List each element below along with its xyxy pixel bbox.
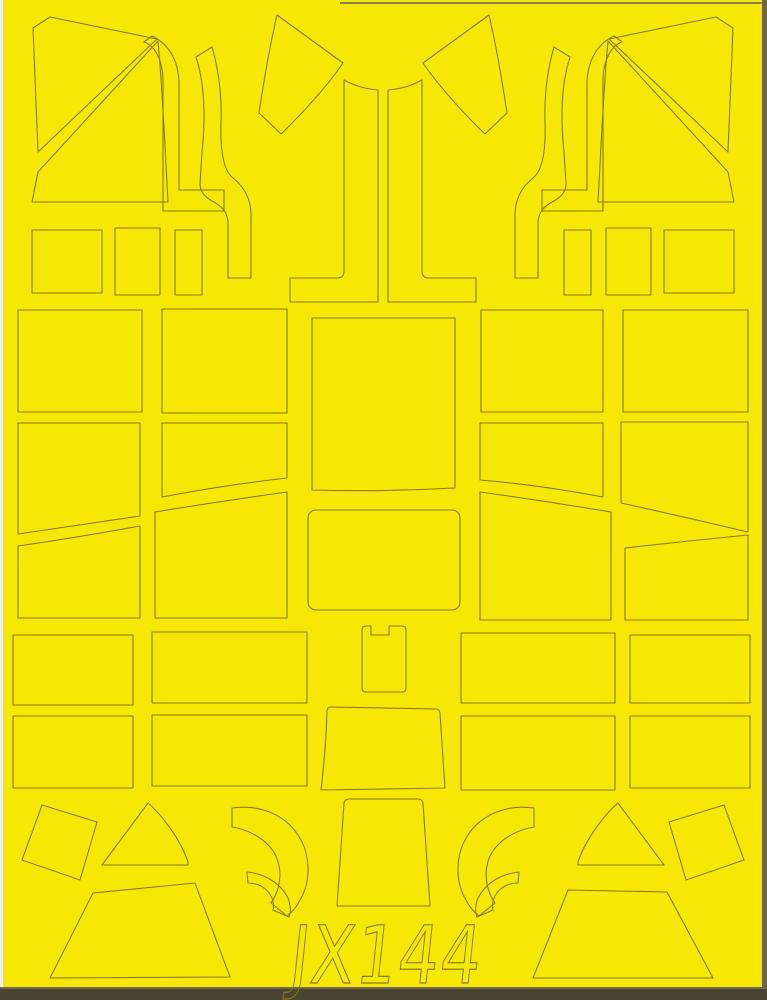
product-code-label: JX144 bbox=[282, 909, 488, 1000]
mask-sheet-scan: JX144 JX144 bbox=[0, 0, 767, 1000]
sheet-edge-top bbox=[340, 2, 762, 4]
mask-sheet: JX144 bbox=[0, 0, 767, 1000]
sheet-background bbox=[0, 0, 767, 1000]
sheet-edge-right bbox=[762, 0, 767, 1000]
margin-left-white bbox=[0, 0, 3, 1000]
